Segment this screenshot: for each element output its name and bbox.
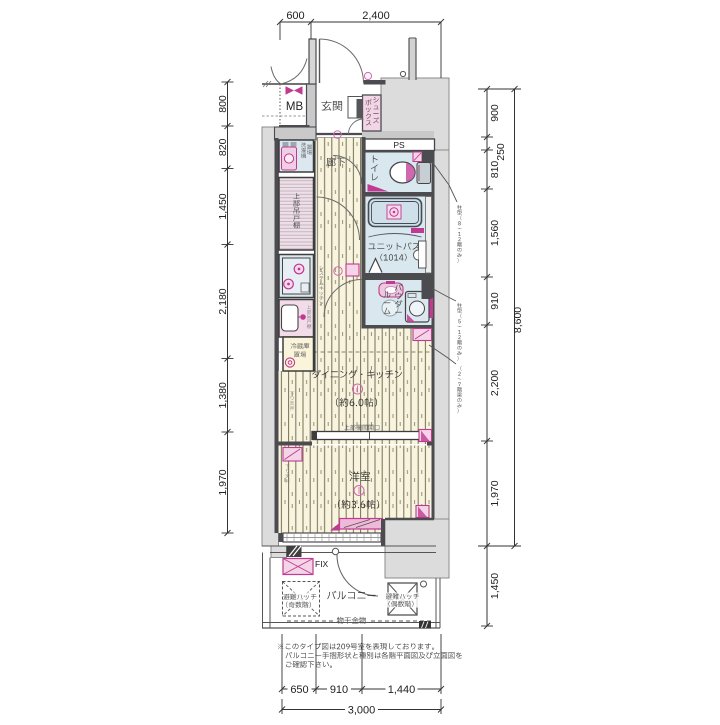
svg-text:810: 810: [489, 161, 501, 179]
svg-text:250: 250: [495, 143, 507, 161]
svg-text:900: 900: [489, 104, 501, 122]
svg-text:1,440: 1,440: [388, 684, 416, 696]
svg-text:1,380: 1,380: [217, 382, 229, 408]
svg-text:600: 600: [286, 10, 304, 22]
svg-text:1,560: 1,560: [489, 220, 501, 246]
svg-text:PS: PS: [393, 140, 405, 150]
svg-text:2,180: 2,180: [217, 288, 229, 314]
svg-text:MB: MB: [286, 101, 304, 113]
svg-text:FIX: FIX: [315, 559, 329, 569]
svg-text:1,450: 1,450: [489, 573, 501, 599]
svg-text:2,200: 2,200: [489, 370, 501, 396]
svg-text:8,600: 8,600: [512, 307, 524, 333]
svg-text:3,000: 3,000: [348, 705, 376, 717]
svg-text:2,400: 2,400: [362, 10, 390, 22]
svg-text:1,450: 1,450: [217, 193, 229, 219]
svg-text:910: 910: [330, 684, 348, 696]
svg-text:1,970: 1,970: [489, 480, 501, 506]
svg-text:650: 650: [290, 684, 308, 696]
svg-text:820: 820: [217, 138, 229, 156]
svg-text:1,970: 1,970: [217, 469, 229, 495]
svg-text:800: 800: [217, 95, 229, 113]
svg-text:910: 910: [489, 292, 501, 310]
